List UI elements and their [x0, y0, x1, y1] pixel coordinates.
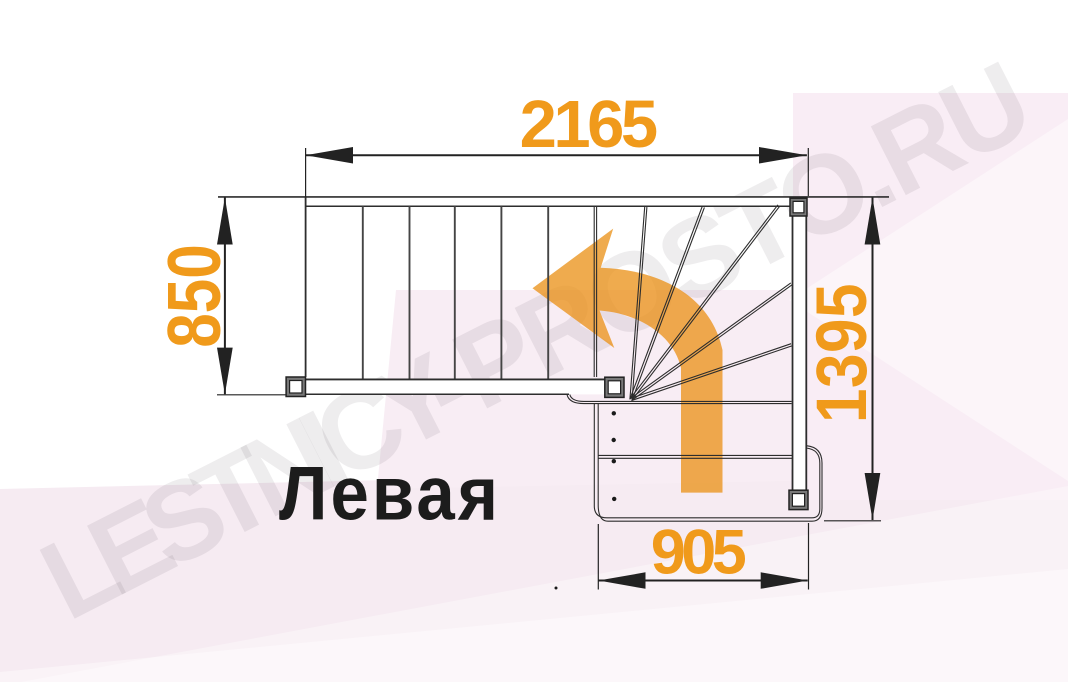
svg-text:850: 850 [151, 244, 236, 347]
svg-text:2165: 2165 [520, 87, 657, 162]
svg-text:1395: 1395 [803, 283, 882, 423]
svg-text:905: 905 [651, 518, 746, 588]
svg-text:Левая: Левая [279, 451, 501, 536]
